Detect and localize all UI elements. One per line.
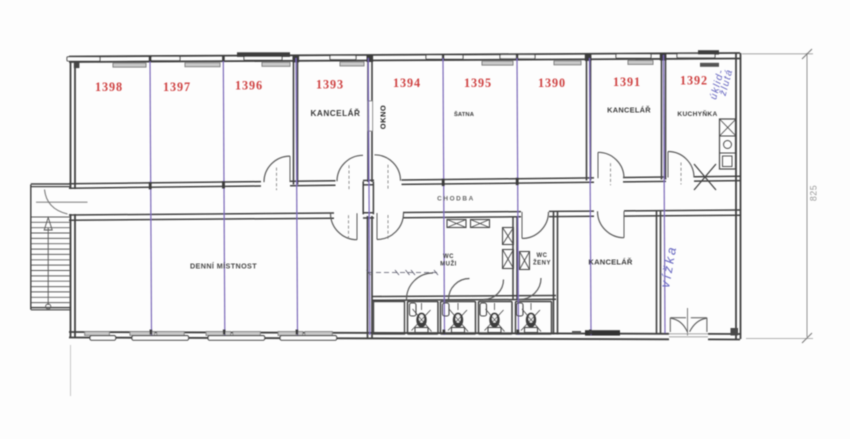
svg-text:MUŽI: MUŽI bbox=[440, 260, 457, 268]
svg-text:1391: 1391 bbox=[613, 75, 641, 89]
svg-text:825: 825 bbox=[809, 185, 819, 201]
svg-text:1393: 1393 bbox=[316, 78, 344, 92]
svg-text:1390: 1390 bbox=[538, 76, 566, 90]
svg-text:CHODBA: CHODBA bbox=[437, 196, 475, 203]
svg-text:KANCELÁŘ: KANCELÁŘ bbox=[311, 107, 361, 118]
svg-text:1394: 1394 bbox=[393, 76, 421, 90]
svg-text:KANCELÁŘ: KANCELÁŘ bbox=[588, 258, 633, 267]
svg-text:WC: WC bbox=[443, 254, 454, 260]
svg-text:WC: WC bbox=[537, 253, 548, 259]
svg-text:ŠATNA: ŠATNA bbox=[454, 110, 475, 118]
svg-text:1398: 1398 bbox=[95, 80, 123, 94]
svg-text:1395: 1395 bbox=[464, 76, 492, 90]
svg-text:DENNÍ MÍSTNOST: DENNÍ MÍSTNOST bbox=[190, 262, 257, 271]
svg-text:OKNO: OKNO bbox=[379, 105, 388, 130]
svg-text:1397: 1397 bbox=[163, 80, 191, 94]
svg-text:ŽENY: ŽENY bbox=[533, 259, 551, 267]
svg-text:1392: 1392 bbox=[680, 74, 708, 88]
svg-text:1396: 1396 bbox=[235, 79, 263, 93]
svg-text:KUCHYŇKA: KUCHYŇKA bbox=[677, 109, 717, 118]
svg-text:KANCELÁŘ: KANCELÁŘ bbox=[607, 106, 651, 115]
